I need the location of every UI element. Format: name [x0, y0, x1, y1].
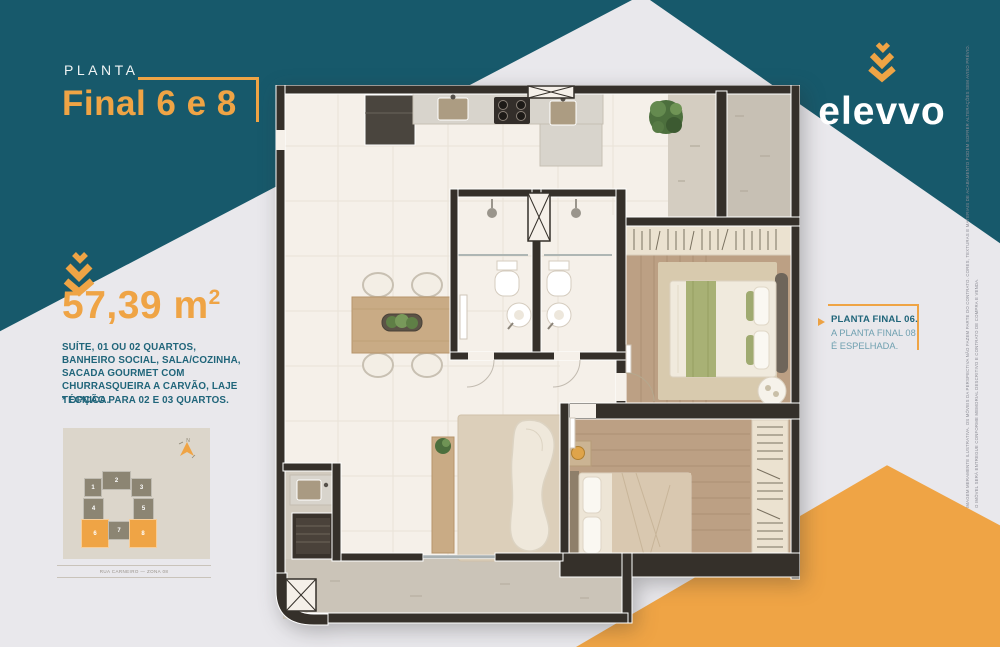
callout-heading: PLANTA FINAL 06. [831, 314, 918, 325]
north-arrow-icon: N [175, 436, 199, 460]
suite-side-table [758, 377, 786, 405]
legal-line-1: IMAGEM MERAMENTE ILUSTRATIVA. OS MÓVEIS … [963, 246, 972, 508]
bedroom-bed [570, 471, 691, 559]
grill-sink [297, 480, 321, 500]
bedroom-room [566, 418, 791, 559]
area-unit: m [162, 284, 209, 327]
keyplan-unit-5: 5 [133, 498, 154, 520]
keyplan-unit-4: 4 [83, 498, 104, 520]
prep-sink [550, 101, 576, 125]
cooktop [494, 97, 530, 124]
suite-bed [670, 273, 788, 377]
callout-line1: A PLANTA FINAL 08 [831, 328, 916, 338]
kitchen-peninsula [540, 124, 602, 166]
dining-table [352, 297, 450, 353]
floor-plan [270, 85, 800, 630]
keyplan-caption: RUA CARNEIRO — ZONA 08 [57, 565, 211, 578]
keyplan-unit-6: 6 [81, 519, 109, 548]
refrigerator [365, 95, 415, 145]
keyplan-unit-2: 2 [102, 471, 131, 490]
keyplan: 1 2 3 4 5 6 7 8 N [63, 428, 210, 559]
brand-logo: elevvo [798, 40, 966, 131]
keyplan-unit-3: 3 [131, 478, 152, 497]
callout-arrow-icon [818, 318, 825, 326]
plan-eyebrow: PLANTA [64, 62, 138, 78]
unit-area: 57,39 m2 [62, 284, 221, 328]
callout-line2: É ESPELHADA. [831, 341, 898, 351]
gourmet-corner [290, 475, 336, 559]
page-title: Final 6 e 8 [62, 84, 237, 124]
charcoal-grill [292, 513, 334, 559]
suite-room [626, 225, 791, 407]
tv-console [432, 437, 454, 553]
bedroom-wardrobe [752, 420, 788, 553]
kitchen-sink [438, 98, 468, 120]
keyplan-unit-8: 8 [129, 519, 157, 548]
brand-wordmark: elevvo [798, 92, 966, 131]
technical-slab [668, 91, 791, 218]
chevrons-icon [864, 40, 900, 86]
door-leaf [570, 418, 575, 448]
living-area [432, 415, 562, 561]
keyplan-unit-7: 7 [108, 521, 130, 540]
option-note: * OPÇÃO PARA 02 E 03 QUARTOS. [62, 395, 252, 406]
keyplan-unit-1: 1 [84, 478, 102, 497]
marketing-page: PLANTA Final 6 e 8 elevvo 57,39 m2 SUÍTE… [0, 0, 1000, 647]
area-value: 57,39 [62, 284, 162, 327]
area-exponent: 2 [209, 286, 221, 309]
legal-disclaimer-vertical: IMAGEM MERAMENTE ILUSTRATIVA. OS MÓVEIS … [963, 246, 981, 508]
balcony-glass-door [423, 555, 495, 559]
corner-shaft [286, 579, 316, 611]
suite-closet [626, 225, 791, 255]
door-leaf [460, 295, 467, 339]
plant [649, 100, 683, 134]
door-leaf [626, 345, 631, 373]
legal-line-2: O IMÓVEL SERÁ ENTREGUE CONFORME MEMORIAL… [972, 246, 981, 508]
